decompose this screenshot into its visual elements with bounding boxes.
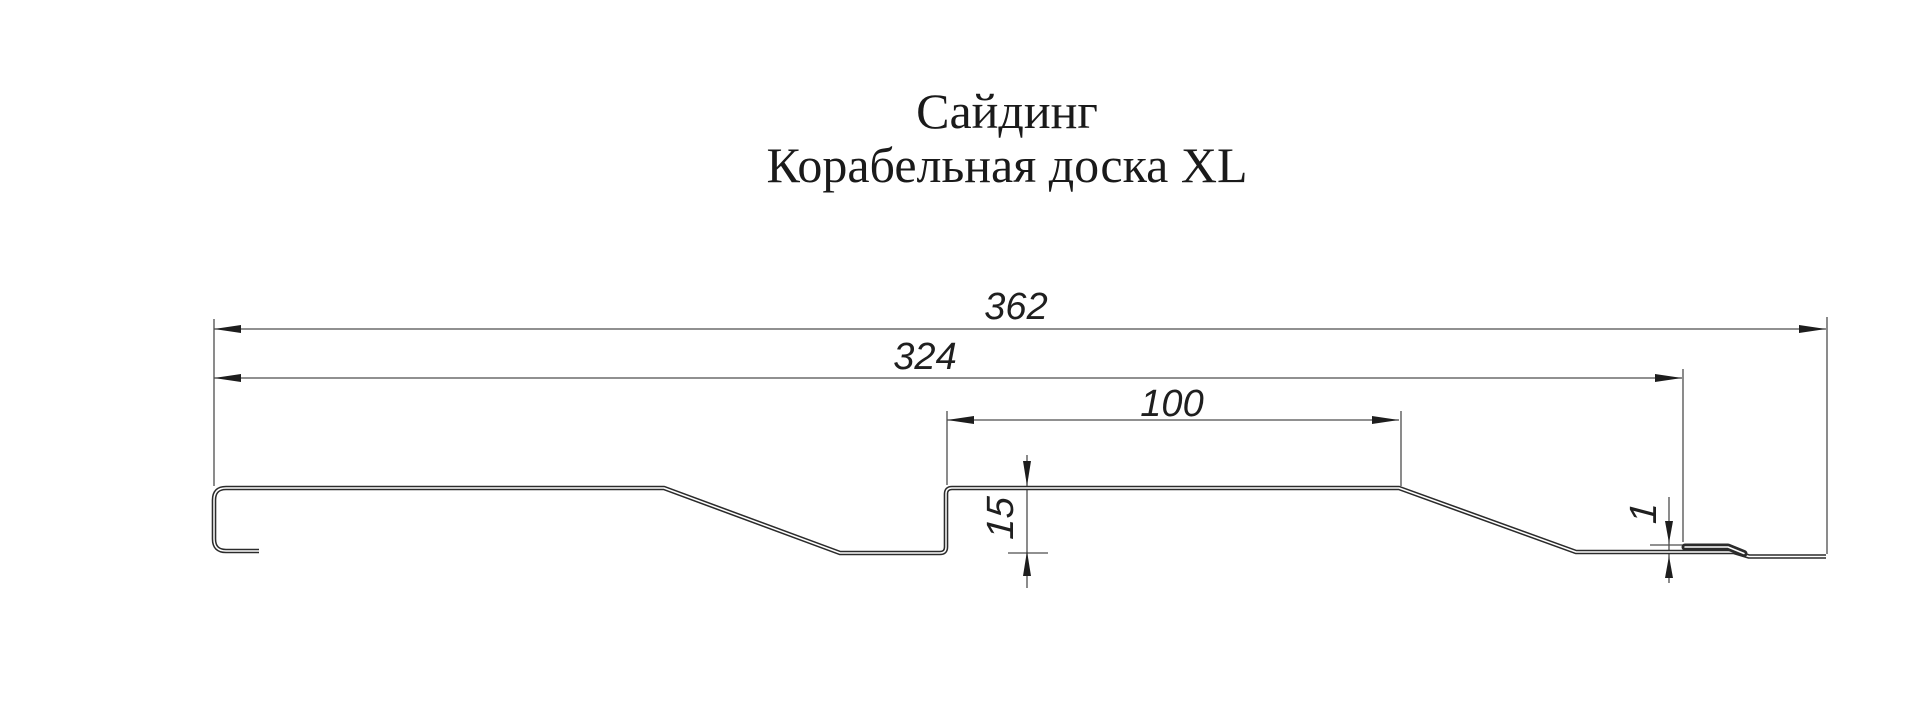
- arrow-100-left: [947, 416, 974, 424]
- profile-cross-section-drawing: [0, 0, 1920, 723]
- arrow-324-right: [1655, 374, 1682, 382]
- arrow-15-top: [1023, 461, 1031, 486]
- arrow-1-bottom: [1665, 556, 1673, 578]
- drawing-canvas: Сайдинг Корабельная доска XL: [0, 0, 1920, 723]
- arrow-324-left: [214, 374, 241, 382]
- dim-label-seam-thickness: 1: [1625, 501, 1663, 525]
- arrow-15-bottom: [1023, 551, 1031, 576]
- dim-label-profile-depth: 15: [982, 496, 1020, 541]
- dim-label-plank-width: 100: [1140, 385, 1203, 423]
- arrow-100-right: [1372, 416, 1399, 424]
- arrow-362-left: [214, 325, 241, 333]
- arrow-1-top: [1665, 521, 1673, 543]
- arrow-362-right: [1799, 325, 1826, 333]
- dim-label-overall-width: 362: [984, 288, 1047, 326]
- dim-label-working-width: 324: [893, 338, 956, 376]
